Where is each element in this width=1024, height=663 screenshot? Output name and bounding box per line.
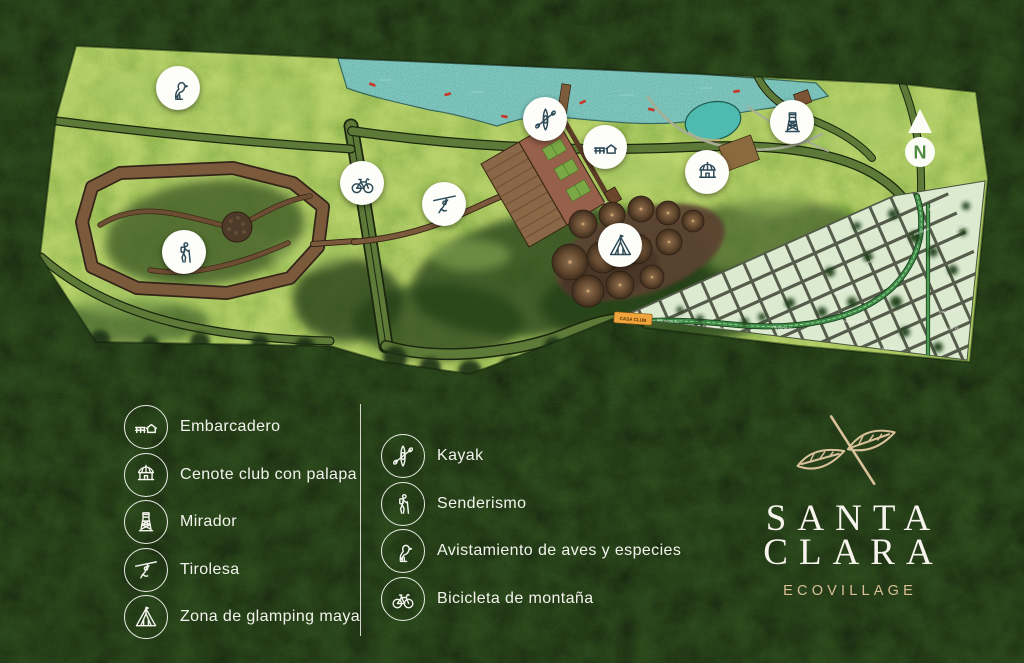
legend-label: Kayak <box>437 447 483 465</box>
map-marker-bicicleta-de-montana <box>340 161 384 205</box>
bird-icon <box>381 529 425 573</box>
map-marker-cenote-club <box>685 150 729 194</box>
legend-label: Zona de glamping maya <box>180 608 360 626</box>
map-marker-kayak <box>523 97 567 141</box>
bicycle-icon <box>349 170 376 197</box>
map-marker-tirolesa <box>422 182 466 226</box>
brand-name-line1: SANTA <box>698 502 998 536</box>
legend-item-glamping: Zona de glamping maya <box>124 594 360 640</box>
legend-divider <box>360 404 361 636</box>
legend-label: Embarcadero <box>180 418 280 436</box>
tent-icon <box>607 232 634 259</box>
legend-column-1: Embarcadero Cenote club con palapa Mirad… <box>124 404 360 642</box>
brand-name-line2: CLARA <box>698 536 998 570</box>
leaf-emblem-icon <box>792 412 904 492</box>
dock-icon <box>592 134 619 161</box>
hiker-icon <box>381 482 425 526</box>
map-marker-mirador <box>770 100 814 144</box>
legend-item-avistamiento: Avistamiento de aves y especies <box>381 528 681 574</box>
legend-item-tirolesa: Tirolesa <box>124 547 360 593</box>
legend-label: Tirolesa <box>180 561 240 579</box>
zipline-icon <box>124 548 168 592</box>
legend-column-2: Kayak Senderismo Avistamiento de aves y … <box>381 433 681 623</box>
legend-item-kayak: Kayak <box>381 433 681 479</box>
svg-text:N: N <box>914 143 927 163</box>
watchtower-icon <box>779 109 806 136</box>
hiker-icon <box>171 239 198 266</box>
legend-label: Bicicleta de montaña <box>437 590 594 608</box>
bicycle-icon <box>381 577 425 621</box>
santa-clara-ecovillage-masterplan: { "brand": { "name_line1": "SANTA", "nam… <box>0 0 1024 663</box>
bird-icon <box>165 75 192 102</box>
legend-item-senderismo: Senderismo <box>381 481 681 527</box>
brand-logo: SANTA CLARA ECOVILLAGE <box>698 412 998 599</box>
kayak-icon <box>532 106 559 133</box>
map-marker-glamping <box>598 223 642 267</box>
tent-icon <box>124 595 168 639</box>
map-marker-senderismo <box>162 230 206 274</box>
legend-item-embarcadero: Embarcadero <box>124 404 360 450</box>
map-marker-embarcadero <box>583 125 627 169</box>
brand-name: SANTA CLARA <box>698 502 998 570</box>
legend-label: Cenote club con palapa <box>180 466 357 484</box>
brand-subtitle: ECOVILLAGE <box>698 583 998 599</box>
zipline-icon <box>431 191 458 218</box>
legend-label: Avistamiento de aves y especies <box>437 542 681 560</box>
map-marker-avistamiento-de-aves <box>156 66 200 110</box>
watchtower-icon <box>124 500 168 544</box>
legend-label: Senderismo <box>437 495 526 513</box>
legend-item-mirador: Mirador <box>124 499 360 545</box>
street-label: PRIVADA 16 <box>843 320 865 324</box>
palapa-icon <box>694 159 721 186</box>
casa-club-label: CASA CLUB <box>614 312 653 326</box>
legend-item-cenote-club: Cenote club con palapa <box>124 452 360 498</box>
legend-label: Mirador <box>180 513 237 531</box>
palapa-icon <box>124 453 168 497</box>
kayak-icon <box>381 434 425 478</box>
dock-icon <box>124 405 168 449</box>
legend-item-bicicleta: Bicicleta de montaña <box>381 576 681 622</box>
